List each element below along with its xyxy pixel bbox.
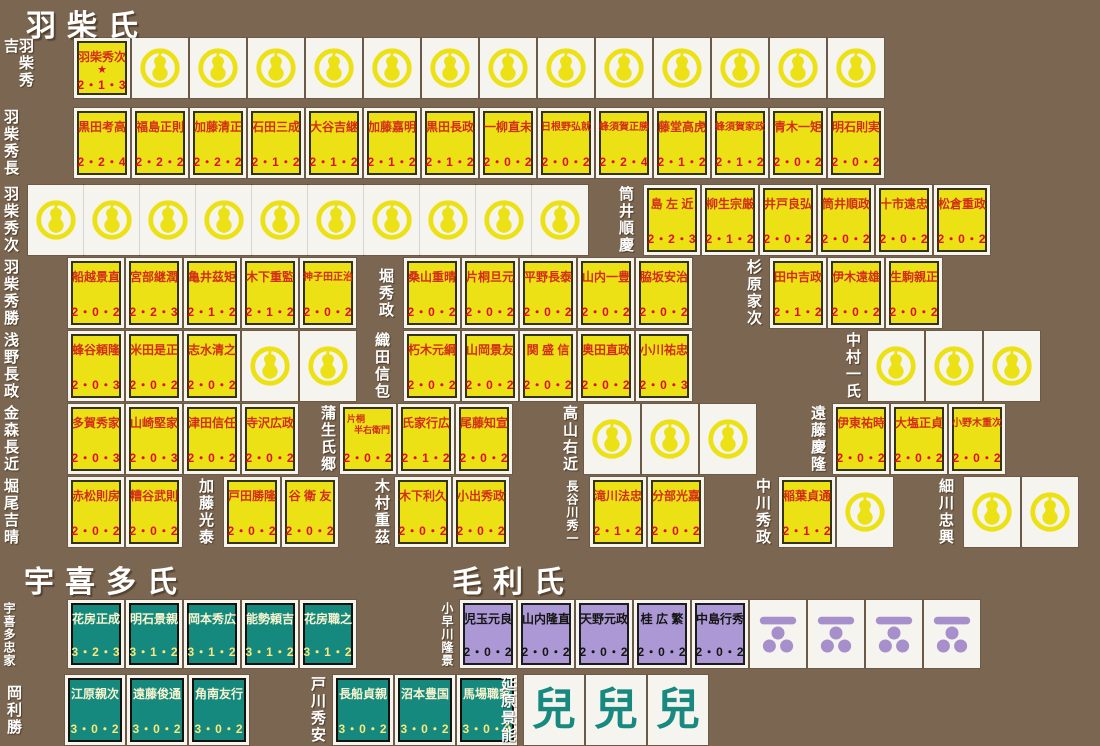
unit-stats: 2・0・2 <box>187 449 236 466</box>
ko-glyph: 兒 <box>532 688 576 732</box>
unit-card[interactable]: 黒田長政2・1・2 <box>422 108 478 178</box>
unit-card[interactable]: 遠藤俊通3・0・2 <box>127 675 187 745</box>
unit-stats: 2・1・2 <box>773 303 822 320</box>
unit-card[interactable]: 花房正成3・2・3 <box>68 600 124 668</box>
card-row-17: 滝川法忠2・1・2分部光嘉2・0・2 <box>590 477 704 547</box>
unit-name: 明石景親 <box>130 610 178 627</box>
unit-card[interactable]: 青木一矩2・0・2 <box>770 108 826 178</box>
unit-card[interactable]: 桑山重晴2・0・2 <box>404 258 460 328</box>
unit-stats: 2・0・3 <box>71 376 120 393</box>
gourd-mon-icon <box>33 197 79 243</box>
unit-card[interactable]: 加藤嘉明2・1・2 <box>364 108 420 178</box>
gourd-mon-card[interactable] <box>926 331 982 401</box>
unit-card[interactable]: 稲葉貞通2・1・2 <box>779 477 835 547</box>
unit-face: 大塩正貞2・0・2 <box>894 407 944 471</box>
gourd-mon-card[interactable] <box>476 185 532 255</box>
gourd-mon-card[interactable] <box>642 404 698 474</box>
card-row-18: 稲葉貞通2・1・2 <box>779 477 893 547</box>
unit-face: 加藤清正2・2・2 <box>193 111 243 175</box>
mori-mon-icon <box>871 611 917 657</box>
unit-stats: 2・0・2 <box>129 522 178 539</box>
unit-stats: 2・1・2 <box>657 153 706 170</box>
unit-card[interactable]: 石田三成2・1・2 <box>248 108 304 178</box>
gourd-mon-icon <box>145 197 191 243</box>
unit-stats: 2・0・2 <box>695 643 744 660</box>
leader-label-6: 杉原家次 <box>746 258 761 328</box>
unit-face: 松倉重政2・0・2 <box>937 188 987 252</box>
unit-face: 伊木遠雄2・0・2 <box>831 261 881 325</box>
unit-stats: 3・2・3 <box>71 643 120 660</box>
unit-stats: 3・0・2 <box>338 720 387 737</box>
gourd-mon-card[interactable] <box>584 404 640 474</box>
gourd-mon-icon <box>659 45 705 91</box>
unit-name: 児玉元良 <box>464 610 512 627</box>
unit-face: 石田三成2・1・2 <box>251 111 301 175</box>
gourd-mon-card[interactable] <box>300 331 356 401</box>
leader-label-1: 羽柴秀長 <box>3 108 18 178</box>
leader-label-14: 堀尾吉晴 <box>3 477 18 547</box>
unit-card[interactable]: 明石景親3・1・2 <box>126 600 182 668</box>
unit-stats: 2・0・2 <box>836 449 885 466</box>
gourd-mon-card[interactable] <box>538 38 594 98</box>
card-row-5: 桑山重晴2・0・2片桐旦元2・0・2平野長泰2・0・2山内一豊2・0・2脇坂安治… <box>404 258 692 328</box>
unit-card[interactable]: 志水清之2・0・2 <box>184 331 240 401</box>
leader-label-7: 浅野長政 <box>3 331 18 401</box>
unit-face: 谷 衛 友2・0・2 <box>285 480 335 544</box>
unit-card[interactable]: 片桐半右衛門2・0・2 <box>340 404 396 474</box>
unit-stats: 2・0・2 <box>245 449 294 466</box>
unit-name: 滝川法忠 <box>594 487 642 504</box>
unit-card[interactable]: 筒井順政2・0・2 <box>818 185 874 255</box>
unit-name: 蜂谷頼隆 <box>72 341 120 358</box>
unit-face: 赤松則房2・0・2 <box>71 480 121 544</box>
gourd-mon-card[interactable] <box>140 185 196 255</box>
clan-title-ukita: 宇喜多氏 <box>24 557 188 601</box>
unit-stats: 3・1・2 <box>303 643 352 660</box>
unit-face: 稲葉貞通2・1・2 <box>782 480 832 544</box>
game-board: 羽柴氏 宇喜多氏 毛利氏 羽柴秀吉羽柴秀次★2・1・3羽柴秀長黒田考高2・2・4… <box>0 0 1100 746</box>
unit-card[interactable]: 小出秀政2・0・2 <box>453 477 509 547</box>
leader-label-0: 羽柴秀吉 <box>3 38 33 98</box>
gourd-mon-card[interactable] <box>964 477 1020 547</box>
unit-card[interactable]: 長船貞親3・0・2 <box>333 675 393 745</box>
unit-card[interactable]: 中島行秀2・0・2 <box>692 600 748 668</box>
mori-mon-card[interactable] <box>924 600 980 668</box>
unit-stats: 3・0・2 <box>132 720 181 737</box>
unit-card[interactable]: 松倉重政2・0・2 <box>934 185 990 255</box>
unit-card[interactable]: 朽木元綱2・0・2 <box>404 331 460 401</box>
unit-name: 沼本豊国 <box>401 685 449 702</box>
unit-name: 長船貞親 <box>339 685 387 702</box>
unit-card[interactable]: 神子田正治2・0・2 <box>300 258 356 328</box>
leader-label-12: 高山右近 <box>562 404 577 474</box>
unit-stats: 2・0・2 <box>463 643 512 660</box>
unit-name: 福島正則 <box>136 118 184 135</box>
unit-name: 宮部継潤 <box>130 268 178 285</box>
unit-name: 赤松則房 <box>72 487 120 504</box>
unit-name: 神子田正治 <box>303 268 353 283</box>
gourd-mon-card[interactable] <box>532 185 588 255</box>
unit-face: 蜂須賀正勝2・2・4 <box>599 111 649 175</box>
gourd-mon-icon <box>201 197 247 243</box>
unit-face: 山崎堅家2・0・3 <box>129 407 179 471</box>
unit-face: 島 左 近2・2・3 <box>647 188 697 252</box>
unit-card[interactable]: 船越景直2・0・2 <box>68 258 124 328</box>
unit-face: 米田是正2・0・2 <box>129 334 179 398</box>
mori-mon-card[interactable] <box>808 600 864 668</box>
gourd-mon-card[interactable] <box>1022 477 1078 547</box>
unit-name: 十市遠忠 <box>880 195 928 212</box>
gourd-mon-icon <box>305 343 351 389</box>
unit-stats: 2・1・2 <box>401 449 450 466</box>
ko-glyph: 兒 <box>656 688 700 732</box>
gourd-mon-card[interactable] <box>28 185 84 255</box>
gourd-mon-card[interactable] <box>248 38 304 98</box>
unit-card[interactable]: 山内一豊2・0・2 <box>578 258 634 328</box>
unit-stats: 2・0・3 <box>639 376 688 393</box>
mori-mon-card[interactable] <box>866 600 922 668</box>
unit-card[interactable]: 桂 広 繁2・0・2 <box>634 600 690 668</box>
unit-card[interactable]: 大谷吉継2・1・2 <box>306 108 362 178</box>
unit-face: 山内一豊2・0・2 <box>581 261 631 325</box>
unit-stats: 2・0・2 <box>129 376 178 393</box>
unit-name: 小川祐忠 <box>640 341 688 358</box>
unit-name: 田中吉政 <box>774 268 822 285</box>
gourd-mon-card[interactable] <box>242 331 298 401</box>
unit-name: 一柳直未 <box>484 118 532 135</box>
gourd-mon-icon <box>481 197 527 243</box>
unit-card[interactable]: 明石則実2・0・2 <box>828 108 884 178</box>
unit-card[interactable]: 脇坂安治2・0・2 <box>636 258 692 328</box>
unit-name: 松倉重政 <box>938 195 986 212</box>
unit-card[interactable]: 田中吉政2・1・2 <box>770 258 826 328</box>
gourd-mon-icon <box>89 197 135 243</box>
unit-face: 明石則実2・0・2 <box>831 111 881 175</box>
unit-card[interactable]: 沼本豊国3・0・2 <box>395 675 455 745</box>
gourd-mon-icon <box>247 343 293 389</box>
unit-face: 福島正則2・2・2 <box>135 111 185 175</box>
leader-label-3: 筒井順慶 <box>618 185 633 255</box>
unit-name: 島 左 近 <box>651 195 694 212</box>
gourd-mon-card[interactable] <box>364 38 420 98</box>
card-row-3: 島 左 近2・2・3柳生宗厳2・1・2井戸良弘2・0・2筒井順政2・0・2十市遠… <box>644 185 990 255</box>
gourd-mon-card[interactable] <box>596 38 652 98</box>
unit-card[interactable]: 亀井茲矩2・1・2 <box>184 258 240 328</box>
unit-face: 糟谷武則2・0・2 <box>129 480 179 544</box>
unit-name: 木下利久 <box>399 487 447 504</box>
unit-face: 伊東祐時2・0・2 <box>836 407 886 471</box>
unit-card[interactable]: 黒田考高2・2・4 <box>74 108 130 178</box>
unit-card[interactable]: 十市遠忠2・0・2 <box>876 185 932 255</box>
ko-glyph: 兒 <box>594 688 638 732</box>
unit-card[interactable]: 赤松則房2・0・2 <box>68 477 124 547</box>
unit-card[interactable]: 島 左 近2・2・3 <box>644 185 700 255</box>
unit-face: 長船貞親3・0・2 <box>336 678 390 742</box>
unit-card[interactable]: 羽柴秀次★2・1・3 <box>74 38 130 98</box>
card-row-22: 江原親次3・0・2遠藤俊通3・0・2角南友行3・0・2 <box>65 675 249 745</box>
unit-card[interactable]: 生駒親正2・0・2 <box>886 258 942 328</box>
unit-stats: 2・0・2 <box>831 303 880 320</box>
unit-name: 加藤嘉明 <box>368 118 416 135</box>
unit-card[interactable]: 藤堂高虎2・1・2 <box>654 108 710 178</box>
unit-name: 亀井茲矩 <box>188 268 236 285</box>
unit-card[interactable]: 井戸良弘2・0・2 <box>760 185 816 255</box>
unit-card[interactable]: 伊東祐時2・0・2 <box>833 404 889 474</box>
unit-stats: 2・0・2 <box>71 522 120 539</box>
unit-card[interactable]: 蜂須賀正勝2・2・4 <box>596 108 652 178</box>
unit-card[interactable]: 伊木遠雄2・0・2 <box>828 258 884 328</box>
unit-card[interactable]: 氏家行広2・1・2 <box>398 404 454 474</box>
gourd-mon-card[interactable] <box>700 404 756 474</box>
unit-face: 小川祐忠2・0・3 <box>639 334 689 398</box>
unit-name: 山内隆直 <box>522 610 570 627</box>
gourd-mon-card[interactable] <box>712 38 768 98</box>
unit-name: 日根野弘就 <box>541 118 591 133</box>
unit-card[interactable]: 奥田直政2・0・2 <box>578 331 634 401</box>
unit-face: 小野木重次2・0・2 <box>952 407 1002 471</box>
gourd-mon-icon <box>873 343 919 389</box>
unit-stats: 2・0・2 <box>821 230 870 247</box>
unit-face: 加藤嘉明2・1・2 <box>367 111 417 175</box>
unit-card[interactable]: 蜂谷頼隆2・0・3 <box>68 331 124 401</box>
unit-stats: 2・0・2 <box>831 153 880 170</box>
unit-face: 藤堂高虎2・1・2 <box>657 111 707 175</box>
unit-stats: 2・1・2 <box>782 522 831 539</box>
unit-card[interactable]: 山内隆直2・0・2 <box>518 600 574 668</box>
unit-card[interactable]: 宮部継潤2・2・3 <box>126 258 182 328</box>
unit-face: 津田信任2・0・2 <box>187 407 237 471</box>
unit-face: 大谷吉継2・1・2 <box>309 111 359 175</box>
gourd-mon-card[interactable] <box>306 38 362 98</box>
unit-stats: 2・1・2 <box>187 303 236 320</box>
card-row-19 <box>964 477 1078 547</box>
unit-stats: 2・2・3 <box>647 230 696 247</box>
unit-stats: 3・0・2 <box>70 720 119 737</box>
unit-face: 天野元政2・0・2 <box>579 603 629 665</box>
unit-name: 小出秀政 <box>457 487 505 504</box>
gourd-mon-card[interactable] <box>837 477 893 547</box>
unit-card[interactable]: 片桐旦元2・0・2 <box>462 258 518 328</box>
unit-face: 羽柴秀次★2・1・3 <box>77 41 127 95</box>
unit-face: 遠藤俊通3・0・2 <box>130 678 184 742</box>
card-row-21: 児玉元良2・0・2山内隆直2・0・2天野元政2・0・2桂 広 繁2・0・2中島行… <box>460 600 980 668</box>
gourd-mon-card[interactable] <box>828 38 884 98</box>
unit-card[interactable]: 岡本秀広3・1・2 <box>184 600 240 668</box>
unit-face: 明石景親3・1・2 <box>129 603 179 665</box>
clan-title-mori: 毛利氏 <box>452 557 575 601</box>
gourd-mon-icon <box>842 489 888 535</box>
gourd-mon-card[interactable] <box>252 185 308 255</box>
card-row-12 <box>584 404 756 474</box>
unit-card[interactable]: 福島正則2・2・2 <box>132 108 188 178</box>
unit-stats: 2・1・2 <box>425 153 474 170</box>
unit-face: 柳生宗厳2・1・2 <box>705 188 755 252</box>
mori-mon-icon <box>755 611 801 657</box>
card-row-8: 朽木元綱2・0・2山岡景友2・0・2関 盛 信2・0・2奥田直政2・0・2小川祐… <box>404 331 692 401</box>
gourd-mon-card[interactable] <box>420 185 476 255</box>
card-row-11: 片桐半右衛門2・0・2氏家行広2・1・2尾藤知宣2・0・2 <box>340 404 512 474</box>
unit-stats: 2・0・2 <box>407 376 456 393</box>
unit-card[interactable]: 戸田勝隆2・0・2 <box>224 477 280 547</box>
unit-face: 中島行秀2・0・2 <box>695 603 745 665</box>
unit-name: 加藤清正 <box>194 118 242 135</box>
gourd-mon-icon <box>989 343 1035 389</box>
unit-stats: 2・0・2 <box>581 303 630 320</box>
gourd-mon-icon <box>537 197 583 243</box>
gourd-mon-card[interactable] <box>364 185 420 255</box>
unit-card[interactable]: 寺沢広政2・0・2 <box>242 404 298 474</box>
gourd-mon-card[interactable] <box>196 185 252 255</box>
unit-face: 花房正成3・2・3 <box>71 603 121 665</box>
leader-label-5: 堀秀政 <box>378 258 393 328</box>
ko-character-card[interactable]: 兒 <box>648 675 708 745</box>
unit-card[interactable]: 花房職之3・1・2 <box>300 600 356 668</box>
ko-character-card[interactable]: 兒 <box>586 675 646 745</box>
mori-mon-card[interactable] <box>750 600 806 668</box>
gourd-mon-icon <box>931 343 977 389</box>
card-row-6: 田中吉政2・1・2伊木遠雄2・0・2生駒親正2・0・2 <box>770 258 942 328</box>
unit-stats: 2・0・2 <box>651 522 700 539</box>
unit-card[interactable]: 米田是正2・0・2 <box>126 331 182 401</box>
unit-card[interactable]: 日根野弘就2・0・2 <box>538 108 594 178</box>
unit-card[interactable]: 一柳直未2・0・2 <box>480 108 536 178</box>
unit-stats: 2・0・2 <box>187 376 236 393</box>
gourd-mon-card[interactable] <box>84 185 140 255</box>
unit-stats: 2・0・2 <box>465 303 514 320</box>
gourd-mon-card[interactable] <box>422 38 478 98</box>
unit-stats: 2・1・2 <box>245 303 294 320</box>
unit-card[interactable]: 能勢頼吉3・1・2 <box>242 600 298 668</box>
unit-stats: 2・2・4 <box>77 153 126 170</box>
unit-name: 木下重監 <box>246 268 294 285</box>
leader-label-15: 加藤光泰 <box>198 477 213 547</box>
gourd-mon-card[interactable] <box>868 331 924 401</box>
gourd-mon-icon <box>775 45 821 91</box>
unit-card[interactable]: 角南友行3・0・2 <box>189 675 249 745</box>
unit-stats: 2・0・2 <box>303 303 352 320</box>
gourd-mon-icon <box>257 197 303 243</box>
unit-face: 木下利久2・0・2 <box>398 480 448 544</box>
gourd-mon-card[interactable] <box>770 38 826 98</box>
unit-card[interactable]: 谷 衛 友2・0・2 <box>282 477 338 547</box>
unit-stats: 2・1・3 <box>77 76 126 93</box>
unit-stats: 2・0・2 <box>465 376 514 393</box>
unit-name: 氏家行広 <box>402 414 450 431</box>
unit-card[interactable]: 大塩正貞2・0・2 <box>891 404 947 474</box>
leader-label-2: 羽柴秀次 <box>3 185 18 255</box>
leader-label-17: 長谷川秀一 <box>566 477 578 547</box>
unit-card[interactable]: 天野元政2・0・2 <box>576 600 632 668</box>
unit-face: 寺沢広政2・0・2 <box>245 407 295 471</box>
gourd-mon-icon <box>543 45 589 91</box>
unit-name: 桂 広 繁 <box>641 610 684 627</box>
unit-card[interactable]: 小野木重次2・0・2 <box>949 404 1005 474</box>
unit-card[interactable]: 蜂須賀家政2・1・2 <box>712 108 768 178</box>
unit-card[interactable]: 津田信任2・0・2 <box>184 404 240 474</box>
gourd-mon-card[interactable] <box>654 38 710 98</box>
leader-label-21: 小早川隆景 <box>441 600 453 668</box>
unit-card[interactable]: 関 盛 信2・0・2 <box>520 331 576 401</box>
gourd-mon-icon <box>717 45 763 91</box>
unit-stats: 2・0・2 <box>456 522 505 539</box>
ko-character-card[interactable]: 兒 <box>524 675 584 745</box>
gourd-mon-card[interactable] <box>132 38 188 98</box>
unit-card[interactable]: 加藤清正2・2・2 <box>190 108 246 178</box>
unit-card[interactable]: 木下重監2・1・2 <box>242 258 298 328</box>
unit-name: 伊木遠雄 <box>832 268 880 285</box>
unit-name: 江原親次 <box>71 685 119 702</box>
unit-stats: 2・0・2 <box>541 153 590 170</box>
card-row-13: 伊東祐時2・0・2大塩正貞2・0・2小野木重次2・0・2 <box>833 404 1005 474</box>
unit-name: 脇坂安治 <box>640 268 688 285</box>
unit-face: 関 盛 信2・0・2 <box>523 334 573 398</box>
unit-face: 神子田正治2・0・2 <box>303 261 353 325</box>
ace-star-icon: ★ <box>97 65 107 76</box>
gourd-mon-card[interactable] <box>190 38 246 98</box>
mori-mon-icon <box>813 611 859 657</box>
mori-mon-icon <box>929 611 975 657</box>
unit-card[interactable]: 山崎堅家2・0・3 <box>126 404 182 474</box>
unit-face: 筒井順政2・0・2 <box>821 188 871 252</box>
unit-card[interactable]: 山岡景友2・0・2 <box>462 331 518 401</box>
unit-card[interactable]: 尾藤知宣2・0・2 <box>456 404 512 474</box>
unit-card[interactable]: 糟谷武則2・0・2 <box>126 477 182 547</box>
gourd-mon-card[interactable] <box>984 331 1040 401</box>
unit-card[interactable]: 小川祐忠2・0・3 <box>636 331 692 401</box>
gourd-mon-card[interactable] <box>308 185 364 255</box>
unit-card[interactable]: 多賀秀家2・0・3 <box>68 404 124 474</box>
unit-face: 桑山重晴2・0・2 <box>407 261 457 325</box>
unit-name: 柳生宗厳 <box>706 195 754 212</box>
unit-card[interactable]: 滝川法忠2・1・2 <box>590 477 646 547</box>
unit-face: 尾藤知宣2・0・2 <box>459 407 509 471</box>
card-row-4: 船越景直2・0・2宮部継潤2・2・3亀井茲矩2・1・2木下重監2・1・2神子田正… <box>68 258 356 328</box>
unit-card[interactable]: 児玉元良2・0・2 <box>460 600 516 668</box>
gourd-mon-card[interactable] <box>480 38 536 98</box>
unit-stats: 2・0・2 <box>639 303 688 320</box>
unit-card[interactable]: 江原親次3・0・2 <box>65 675 125 745</box>
unit-name: 生駒親正 <box>890 268 938 285</box>
unit-card[interactable]: 分部光嘉2・0・2 <box>648 477 704 547</box>
unit-card[interactable]: 木下利久2・0・2 <box>395 477 451 547</box>
gourd-mon-icon <box>195 45 241 91</box>
card-row-7: 蜂谷頼隆2・0・3米田是正2・0・2志水清之2・0・2 <box>68 331 356 401</box>
unit-name: 寺沢広政 <box>246 414 294 431</box>
unit-card[interactable]: 柳生宗厳2・1・2 <box>702 185 758 255</box>
unit-stats: 2・0・2 <box>581 376 630 393</box>
unit-name: 天野元政 <box>580 610 628 627</box>
unit-stats: 2・0・2 <box>407 303 456 320</box>
unit-stats: 2・0・3 <box>71 449 120 466</box>
unit-name: 羽柴秀次 <box>78 48 126 65</box>
card-row-14: 赤松則房2・0・2糟谷武則2・0・2 <box>68 477 182 547</box>
card-row-2 <box>28 185 588 255</box>
gourd-mon-icon <box>253 45 299 91</box>
leader-label-24: 延原景能 <box>500 675 515 745</box>
unit-name: 尾藤知宣 <box>460 414 508 431</box>
unit-stats: 3・1・2 <box>245 643 294 660</box>
unit-name: 黒田考高 <box>78 118 126 135</box>
unit-face: 井戸良弘2・0・2 <box>763 188 813 252</box>
unit-name: 片桐旦元 <box>466 268 514 285</box>
unit-face: 江原親次3・0・2 <box>68 678 122 742</box>
unit-face: 戸田勝隆2・0・2 <box>227 480 277 544</box>
unit-face: 角南友行3・0・2 <box>192 678 246 742</box>
unit-face: 志水清之2・0・2 <box>187 334 237 398</box>
unit-name: 稲葉貞通 <box>783 487 831 504</box>
unit-card[interactable]: 平野長泰2・0・2 <box>520 258 576 328</box>
unit-stats: 2・0・2 <box>763 230 812 247</box>
